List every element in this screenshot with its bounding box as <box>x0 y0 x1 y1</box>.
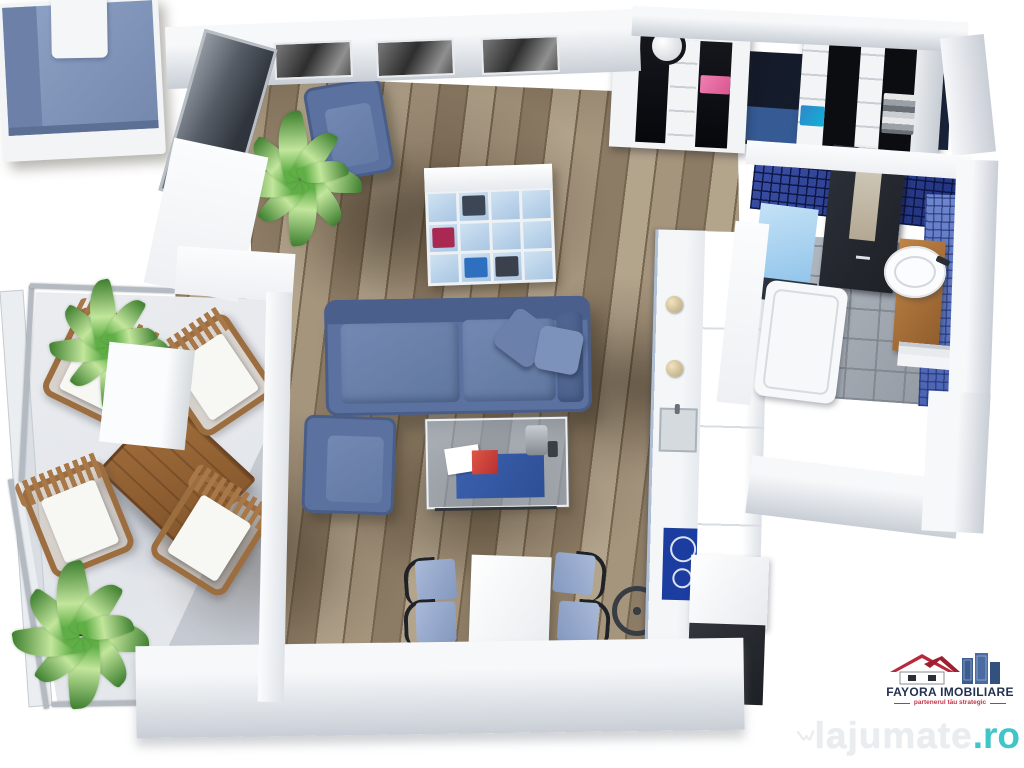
kitchen-bowl <box>666 360 683 377</box>
wardrobe-shelves <box>796 27 830 151</box>
folded-clothes-pink <box>700 75 731 95</box>
decor-jar <box>525 425 548 455</box>
kitchen-lower-cabinet <box>689 555 769 630</box>
shelf-item-blue <box>464 257 487 278</box>
wall-photo-frame <box>376 38 455 78</box>
sofa-cushion <box>340 322 459 404</box>
sofa-pillow <box>533 324 585 376</box>
tagline-dash <box>894 703 910 704</box>
lajumate-logo-icon <box>796 712 815 758</box>
agency-house-icon <box>890 654 960 684</box>
agency-name: FAYORA IMOBILIARE <box>886 686 1014 698</box>
sofa <box>324 296 592 417</box>
chair-seat <box>557 600 600 643</box>
folded-clothes-blue <box>800 105 825 127</box>
chair-seat <box>552 552 596 596</box>
bed-pillow <box>51 0 108 59</box>
shower-handle <box>856 255 870 259</box>
bottom-wall <box>135 638 744 738</box>
cube-shelf-unit <box>424 164 556 286</box>
shelf-grid <box>428 190 553 283</box>
entry-corner-wall <box>921 390 990 533</box>
watermark: lajumate .ro <box>796 706 1020 764</box>
wall-photo-frame <box>274 40 353 80</box>
chair-seat <box>415 601 456 642</box>
towel-rail <box>897 342 955 371</box>
balcony-plant <box>16 552 146 687</box>
balcony-side-wall <box>99 342 195 450</box>
shelf-item-dark <box>462 196 485 217</box>
chair-seat <box>415 558 458 601</box>
watermark-tld: .ro <box>973 717 1020 754</box>
folded-clothes-gray <box>881 93 916 135</box>
agency-buildings-icon <box>962 653 1000 684</box>
coffee-table <box>425 417 569 509</box>
wardrobe-open-section <box>695 41 733 149</box>
floor-plan-render: FAYORA IMOBILIARE partenerul tău strateg… <box>0 0 1024 768</box>
bed-blanket-fold <box>2 6 43 136</box>
kitchen-sink <box>659 408 698 453</box>
kitchen-bowl <box>665 296 682 313</box>
agency-logo-art <box>884 650 1016 686</box>
double-bed <box>0 0 166 162</box>
wall-photo-frame <box>481 35 560 75</box>
bathtub <box>753 279 849 404</box>
decor-bottle <box>548 441 558 457</box>
watermark-brand: lajumate <box>815 717 973 754</box>
dining-chair <box>403 597 463 647</box>
living-armchair <box>301 414 396 515</box>
magazine-red <box>472 450 498 474</box>
shelf-top <box>424 164 553 192</box>
shelf-item-pattern <box>495 256 518 277</box>
dining-chair <box>546 547 609 601</box>
bathroom-right-wall <box>948 159 999 415</box>
armchair-seat <box>326 435 384 503</box>
bathroom-sink <box>884 246 946 298</box>
wardrobe-shelves <box>854 31 886 154</box>
shelf-item-red <box>432 227 455 248</box>
tagline-dash <box>990 703 1006 704</box>
